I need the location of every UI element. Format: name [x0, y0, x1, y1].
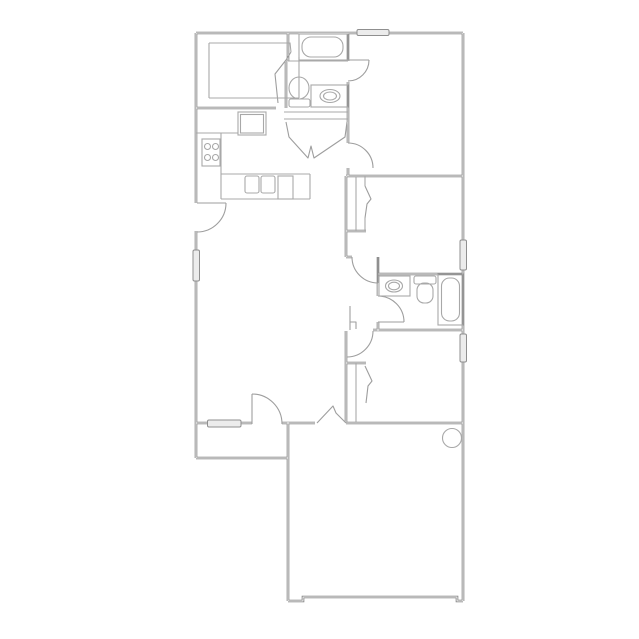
toilet-2 [414, 276, 436, 303]
closet-door-bedroom-3-leaf [365, 366, 372, 403]
refrigerator-inner [241, 115, 264, 134]
vanity-2-basin-inner [389, 282, 400, 290]
burner [213, 155, 219, 161]
burner [213, 144, 219, 150]
wall-lines [196, 33, 463, 601]
sink-basin-left [245, 176, 259, 193]
walls [196, 33, 463, 601]
hall-double-door-leaves [286, 122, 347, 158]
toilet-1-tank [289, 99, 310, 107]
refrigerator [238, 112, 266, 135]
window-right-bedroom-2 [460, 240, 467, 270]
side-door-swing [197, 203, 226, 232]
refrigerator-outer [238, 112, 266, 135]
bedroom-3-door-swing [347, 306, 373, 357]
bathtub-2 [438, 274, 463, 325]
bathtub-1-basin [302, 37, 343, 57]
vanity-1-basin-inner [324, 92, 337, 100]
bathtub-1 [299, 34, 348, 60]
stove-body [202, 139, 220, 166]
bedroom-2-door-swing [352, 257, 378, 283]
fixtures [202, 34, 463, 448]
bedroom-1-door-b-swing [348, 143, 373, 168]
window-top-bedroom-1 [357, 30, 389, 36]
window-left-living-room [193, 250, 200, 281]
counters-and-partitions [196, 61, 365, 422]
kitchen-double-sink [245, 176, 275, 193]
toilet-2-bowl [417, 283, 433, 303]
sink-vanity-1 [311, 85, 348, 107]
range-stove [202, 139, 220, 166]
kitchen-opening-header [284, 112, 348, 119]
water-heater [443, 429, 462, 448]
floor-plan-drawing [0, 0, 639, 639]
front-door-swing [252, 394, 282, 424]
bedroom-1-door-a-swing [348, 60, 369, 81]
vanity-1-counter [311, 85, 348, 107]
window-front-living-room [208, 420, 242, 427]
wall-core-lines [196, 33, 463, 601]
vanity-2-counter [379, 276, 410, 296]
sink-vanity-2 [379, 276, 410, 296]
floor-plan-page: { "title": "floor-plan", "colors": { "ba… [0, 0, 639, 639]
bathroom-2-door-swing [378, 296, 404, 322]
dishwasher [278, 176, 293, 199]
bathtub-2-basin [442, 278, 460, 321]
burner [205, 155, 211, 161]
closet-door-bedroom-2-leaf [365, 186, 371, 218]
sink-basin-right [261, 176, 275, 193]
garage-entry-door-leaf [317, 406, 346, 423]
window-right-bedroom-3 [460, 334, 467, 362]
burner [205, 144, 211, 150]
